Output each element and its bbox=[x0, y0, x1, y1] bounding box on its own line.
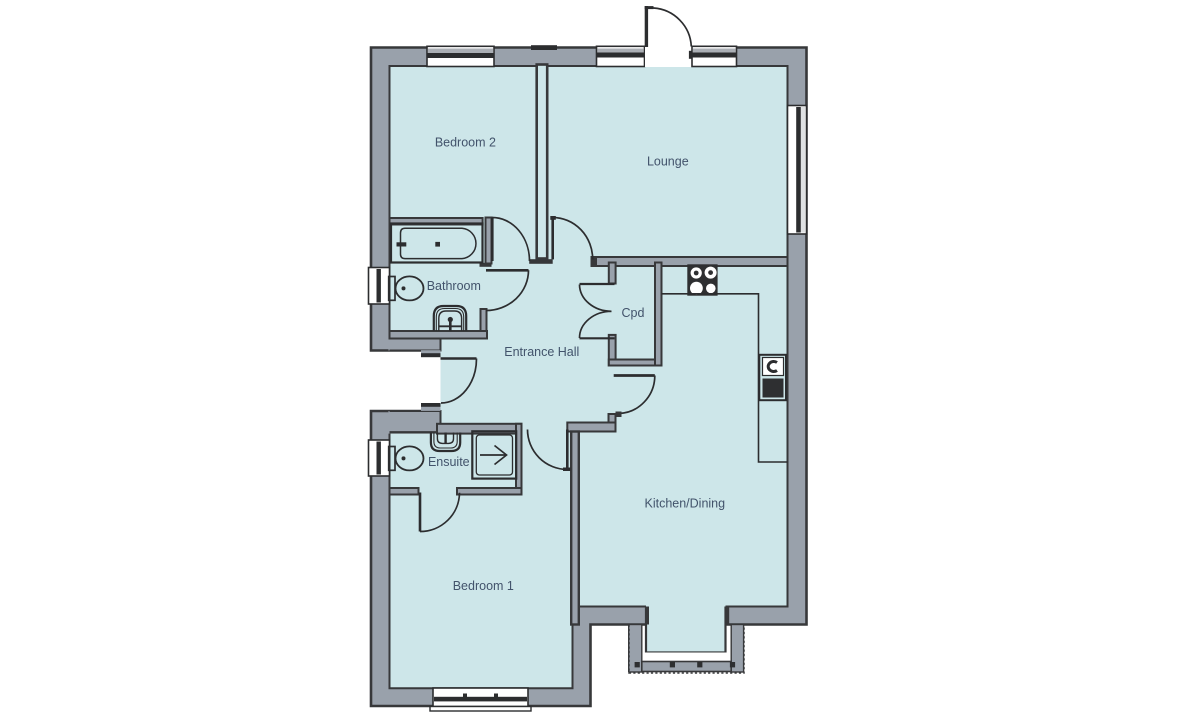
svg-text:Lounge: Lounge bbox=[647, 154, 689, 168]
svg-text:Kitchen/Dining: Kitchen/Dining bbox=[644, 497, 725, 511]
svg-text:Bathroom: Bathroom bbox=[427, 279, 481, 293]
svg-text:Bedroom 1: Bedroom 1 bbox=[453, 579, 514, 593]
svg-text:Ensuite: Ensuite bbox=[428, 455, 470, 469]
svg-text:Entrance Hall: Entrance Hall bbox=[504, 345, 579, 359]
svg-text:Cpd: Cpd bbox=[622, 306, 645, 320]
svg-text:Bedroom 2: Bedroom 2 bbox=[435, 136, 496, 150]
